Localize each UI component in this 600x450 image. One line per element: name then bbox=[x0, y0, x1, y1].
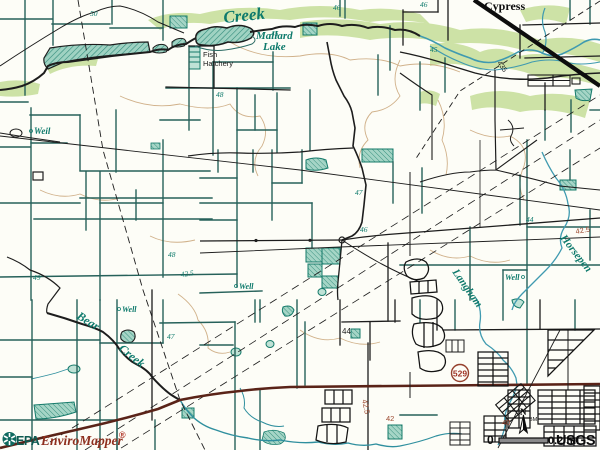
svg-text:47: 47 bbox=[355, 188, 363, 197]
svg-text:®: ® bbox=[119, 430, 126, 440]
svg-text:44: 44 bbox=[342, 327, 351, 336]
svg-text:529: 529 bbox=[453, 369, 467, 379]
svg-text:Fish: Fish bbox=[203, 50, 217, 59]
svg-text:48: 48 bbox=[216, 90, 224, 99]
svg-text:Well: Well bbox=[239, 282, 254, 291]
svg-text:44: 44 bbox=[526, 215, 534, 224]
svg-text:49: 49 bbox=[33, 273, 41, 282]
svg-text:50: 50 bbox=[90, 9, 98, 18]
svg-text:Well: Well bbox=[122, 305, 137, 314]
svg-text:EPA: EPA bbox=[16, 434, 40, 448]
svg-text:Weil: Weil bbox=[34, 126, 51, 136]
svg-text:Well: Well bbox=[505, 273, 520, 282]
svg-text:42: 42 bbox=[386, 414, 394, 423]
svg-text:Hatchery: Hatchery bbox=[203, 59, 233, 68]
svg-text:48: 48 bbox=[168, 250, 176, 259]
svg-text:USGS: USGS bbox=[556, 433, 596, 449]
svg-text:42.5: 42.5 bbox=[180, 268, 194, 279]
svg-text:EnviroMapper: EnviroMapper bbox=[40, 433, 124, 448]
svg-text:40: 40 bbox=[502, 418, 510, 427]
svg-text:0: 0 bbox=[487, 433, 494, 447]
svg-text:46: 46 bbox=[420, 0, 428, 9]
svg-text:46: 46 bbox=[360, 225, 368, 234]
svg-text:BM: BM bbox=[529, 417, 538, 423]
svg-text:Cypress: Cypress bbox=[484, 0, 525, 13]
svg-text:47: 47 bbox=[167, 332, 175, 341]
svg-text:45: 45 bbox=[271, 29, 279, 38]
svg-text:Lake: Lake bbox=[262, 41, 286, 53]
svg-text:45: 45 bbox=[430, 45, 438, 54]
svg-text:46: 46 bbox=[333, 3, 341, 12]
